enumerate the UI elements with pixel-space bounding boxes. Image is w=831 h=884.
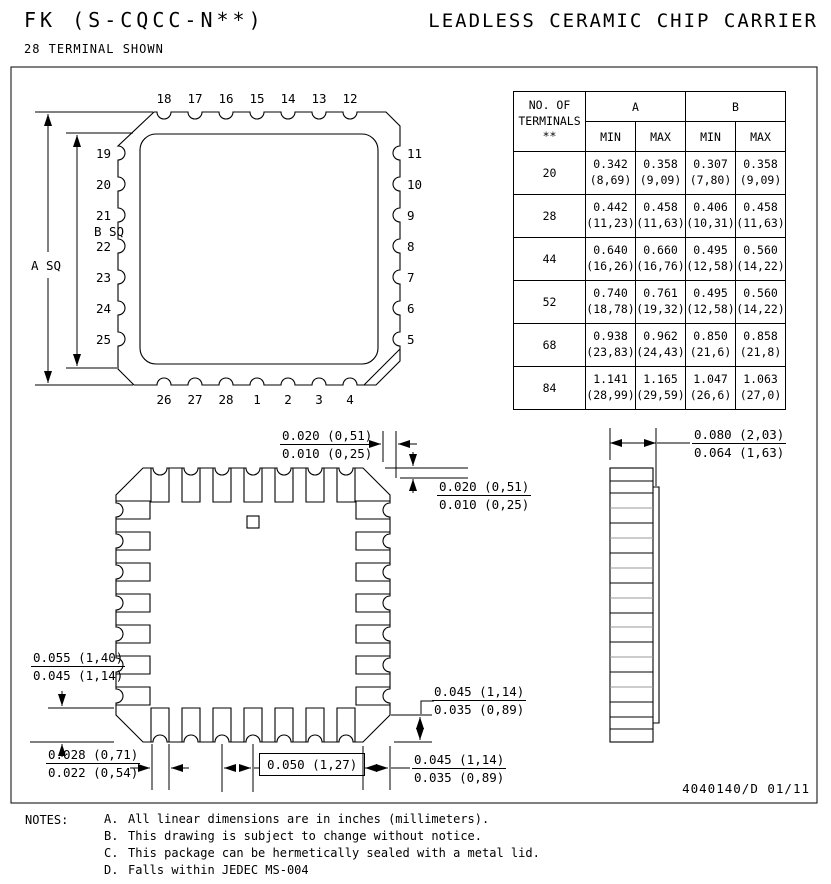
notes-block: NOTES: A.All linear dimensions are in in… <box>25 813 540 881</box>
pin-number: 14 <box>280 91 295 106</box>
table-cell: 0.938(23,83) <box>586 324 636 367</box>
pin-number: 26 <box>156 392 171 407</box>
table-cell: 1.141(28,99) <box>586 367 636 410</box>
table-cell: 1.063(27,0) <box>736 367 786 410</box>
side-view <box>610 468 659 742</box>
dim-package-thickness: 0.080 (2,03)0.064 (1,63) <box>692 427 786 460</box>
pin-number: 21 <box>96 208 111 223</box>
bottom-view <box>116 468 390 742</box>
pin-number: 4 <box>346 392 354 407</box>
table-header-b: B <box>686 92 786 122</box>
table-row: 52 0.740(18,78) 0.761(19,32) 0.495(12,58… <box>514 281 786 324</box>
pin-numbers-right: 11 10 9 8 7 6 5 <box>407 146 422 347</box>
note-item: A.All linear dimensions are in inches (m… <box>104 813 540 826</box>
table-subheader: MAX <box>636 122 686 152</box>
table-cell: 0.342(8,69) <box>586 152 636 195</box>
table-cell: 0.962(24,43) <box>636 324 686 367</box>
table-cell: 1.047(26,6) <box>686 367 736 410</box>
dim-pad-width-bottom: 0.028 (0,71)0.022 (0,54) <box>46 747 140 780</box>
terminal-count: 84 <box>514 367 586 410</box>
table-cell: 0.850(21,6) <box>686 324 736 367</box>
table-row: 20 0.342(8,69) 0.358(9,09) 0.307(7,80) 0… <box>514 152 786 195</box>
terminal-count: 68 <box>514 324 586 367</box>
table-subheader: MAX <box>736 122 786 152</box>
note-item: C.This package can be hermetically seale… <box>104 847 540 860</box>
pin-number: 10 <box>407 177 422 192</box>
table-cell: 0.858(21,8) <box>736 324 786 367</box>
pin-number: 3 <box>315 392 323 407</box>
pin-number: 8 <box>407 239 415 254</box>
document-number: 4040140/D 01/11 <box>682 781 810 796</box>
pin-number: 11 <box>407 146 422 161</box>
dim-pad-length-left: 0.055 (1,40)0.045 (1,14) <box>31 650 125 683</box>
pin-number: 2 <box>284 392 292 407</box>
table-subheader: MIN <box>586 122 636 152</box>
dim-terminal-width-top: 0.020 (0,51)0.010 (0,25) <box>280 428 374 461</box>
bottom-view-body-outline <box>116 468 390 742</box>
pin-numbers-bottom: 26 27 28 1 2 3 4 <box>156 392 353 407</box>
pin-number: 24 <box>96 301 111 316</box>
table-header-terminals: NO. OF TERMINALS ** <box>514 92 586 152</box>
pin-number: 16 <box>218 91 233 106</box>
terminal-count: 28 <box>514 195 586 238</box>
table-row: 44 0.640(16,26) 0.660(16,76) 0.495(12,58… <box>514 238 786 281</box>
terminal-count: 44 <box>514 238 586 281</box>
pin-number: 7 <box>407 270 415 285</box>
dim-terminal-depth-top: 0.020 (0,51)0.010 (0,25) <box>437 479 531 512</box>
table-cell: 0.560(14,22) <box>736 281 786 324</box>
pin-number: 9 <box>407 208 415 223</box>
table-cell: 0.761(19,32) <box>636 281 686 324</box>
note-item: B.This drawing is subject to change with… <box>104 830 540 843</box>
side-view-body <box>610 468 653 742</box>
terminal-count: 20 <box>514 152 586 195</box>
terminal-count: 52 <box>514 281 586 324</box>
table-subheader: MIN <box>686 122 736 152</box>
pin-number: 15 <box>249 91 264 106</box>
side-view-lid-step <box>653 487 659 723</box>
pin-number: 5 <box>407 332 415 347</box>
pin-number: 20 <box>96 177 111 192</box>
pin-number: 23 <box>96 270 111 285</box>
pin-numbers-top: 18 17 16 15 14 13 12 <box>156 91 357 106</box>
dim-corner-chamfer-horizontal: 0.045 (1,14)0.035 (0,89) <box>412 752 506 785</box>
table-row: 84 1.141(28,99) 1.165(29,59) 1.047(26,6)… <box>514 367 786 410</box>
pin-number: 27 <box>187 392 202 407</box>
table-cell: 0.458(11,63) <box>736 195 786 238</box>
pin-numbers-left: 19 20 21 22 23 24 25 <box>96 146 111 347</box>
pin-number: 13 <box>311 91 326 106</box>
table-cell: 0.358(9,09) <box>736 152 786 195</box>
dim-label-b-sq: B SQ <box>94 224 124 239</box>
table-cell: 0.442(11,23) <box>586 195 636 238</box>
table-cell: 0.406(10,31) <box>686 195 736 238</box>
note-item: D.Falls within JEDEC MS-004 <box>104 864 540 877</box>
dim-corner-chamfer-vertical: 0.045 (1,14)0.035 (0,89) <box>432 684 526 717</box>
table-cell: 0.307(7,80) <box>686 152 736 195</box>
table-cell: 0.660(16,76) <box>636 238 686 281</box>
notes-label: NOTES: <box>25 813 82 881</box>
top-view-body-outline <box>118 112 400 385</box>
table-cell: 1.165(29,59) <box>636 367 686 410</box>
pin-number: 12 <box>342 91 357 106</box>
pin-number: 22 <box>96 239 111 254</box>
table-cell: 0.560(14,22) <box>736 238 786 281</box>
table-cell: 0.358(9,09) <box>636 152 686 195</box>
top-view <box>118 112 400 385</box>
table-cell: 0.740(18,78) <box>586 281 636 324</box>
pin-number: 19 <box>96 146 111 161</box>
pin-number: 28 <box>218 392 233 407</box>
pin-number: 17 <box>187 91 202 106</box>
terminal-dimension-table: NO. OF TERMINALS ** A B MIN MAX MIN MAX … <box>513 91 786 410</box>
table-cell: 0.495(12,58) <box>686 281 736 324</box>
pin-number: 18 <box>156 91 171 106</box>
table-cell: 0.640(16,26) <box>586 238 636 281</box>
pin-number: 6 <box>407 301 415 316</box>
table-cell: 0.495(12,58) <box>686 238 736 281</box>
table-cell: 0.458(11,63) <box>636 195 686 238</box>
dim-terminal-pitch: 0.050 (1,27) <box>259 753 365 776</box>
table-row: 28 0.442(11,23) 0.458(11,63) 0.406(10,31… <box>514 195 786 238</box>
table-header-a: A <box>586 92 686 122</box>
pin-number: 1 <box>253 392 261 407</box>
table-row: 68 0.938(23,83) 0.962(24,43) 0.850(21,6)… <box>514 324 786 367</box>
dim-label-a-sq: A SQ <box>31 258 61 273</box>
pin-number: 25 <box>96 332 111 347</box>
